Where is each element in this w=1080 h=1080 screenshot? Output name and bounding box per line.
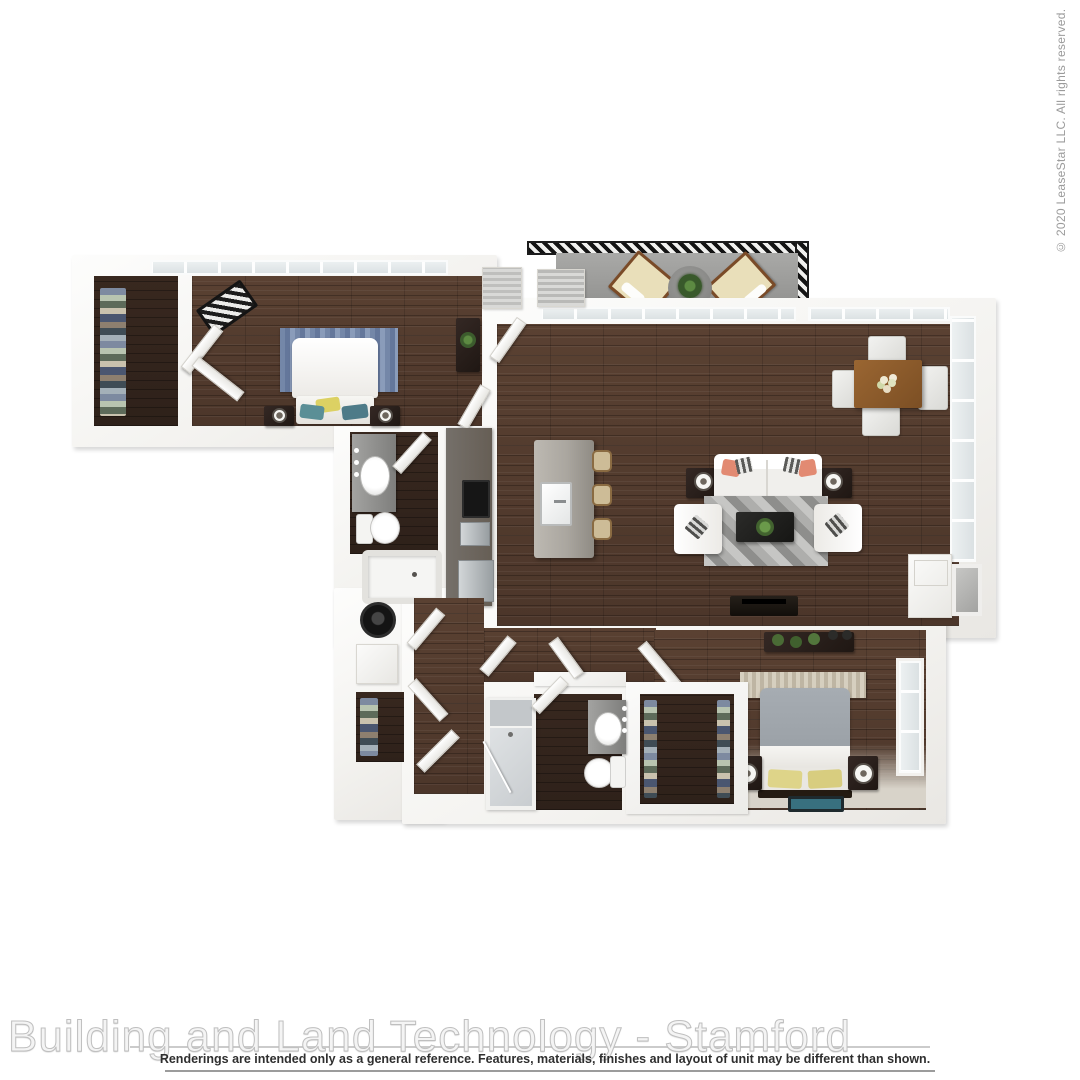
bathroom2-toilet-tank (610, 756, 626, 788)
disclaimer-rule (165, 1070, 935, 1072)
floorplan-image (0, 0, 1080, 1080)
bathroom1-faucet-knobs (354, 448, 359, 453)
living-sofa-seam (766, 460, 768, 500)
bathroom2-sink (594, 712, 622, 746)
kitchen-island-sink (540, 482, 572, 526)
bathroom2-faucet-knobs (622, 706, 627, 711)
bedroom2-planter-greens (772, 634, 784, 646)
bedroom2-bed-sheet (760, 746, 850, 770)
dining-chair-right (918, 366, 948, 410)
utility-louver-panel-1 (482, 267, 522, 309)
bedroom1-lamp-right (378, 408, 393, 423)
dining-table (854, 360, 922, 408)
bedroom1-bed-duvet (292, 338, 378, 398)
bathroom1-sink (360, 456, 390, 496)
bathroom2-shower-shelf (490, 700, 532, 728)
bathroom1-bathtub (362, 550, 442, 604)
bedroom2-bed-duvet (760, 688, 850, 748)
island-stool-3 (592, 518, 612, 540)
floorplan-page: © 2020 LeaseStar LLC. All rights reserve… (0, 0, 1080, 1080)
disclaimer-text: Renderings are intended only as a genera… (155, 1052, 935, 1066)
laundry-washer (360, 602, 396, 638)
bedroom2-rug (788, 796, 844, 812)
balcony-plant (678, 274, 702, 298)
dining-chair-bottom (862, 406, 900, 436)
hall-closet-clothes (360, 698, 378, 756)
entry-console-plant (460, 332, 476, 348)
kitchen-dishwasher (460, 522, 490, 546)
closet2-clothes-right (717, 700, 730, 798)
bedroom2-window (896, 658, 924, 776)
copyright-text: © 2020 LeaseStar LLC. All rights reserve… (1054, 14, 1068, 254)
laundry-dryer (356, 644, 398, 684)
bedroom2-lamp-right (853, 763, 874, 784)
sofa-pillow-stripe-right (783, 457, 802, 475)
closet1-clothes-rack (100, 288, 126, 416)
closet2-clothes-left (644, 700, 657, 798)
bedroom2-pillow-yellow-left (768, 769, 803, 789)
living-window-right-wall (950, 316, 976, 562)
dining-table-flowers (880, 376, 888, 384)
utility-louver-panel-2 (537, 269, 585, 307)
bathtub-drain (412, 572, 417, 577)
living-cabinet-panel (914, 560, 948, 586)
kitchen-cooktop (462, 480, 490, 518)
living-lamp-right (824, 472, 843, 491)
living-windows-top-left (540, 307, 796, 321)
bedroom1-windows (150, 260, 448, 275)
coffee-table-plant (756, 518, 774, 536)
living-windows-top-right (808, 307, 950, 321)
bedroom1-lamp-left (272, 408, 287, 423)
kitchen-refrigerator (458, 560, 494, 602)
kitchen-sink-faucet (554, 500, 566, 503)
bedroom2-pillow-yellow-right (808, 769, 843, 789)
island-stool-2 (592, 484, 612, 506)
bedroom1-pillow-teal-left (299, 404, 325, 421)
wall-niche (952, 564, 982, 616)
living-lamp-left (694, 472, 713, 491)
tv-screen (742, 599, 786, 604)
island-stool-1 (592, 450, 612, 472)
bedroom2-wall-decor-circles (828, 630, 838, 640)
bathroom2-shower-head (508, 732, 513, 737)
bathroom1-toilet-bowl (370, 512, 400, 544)
